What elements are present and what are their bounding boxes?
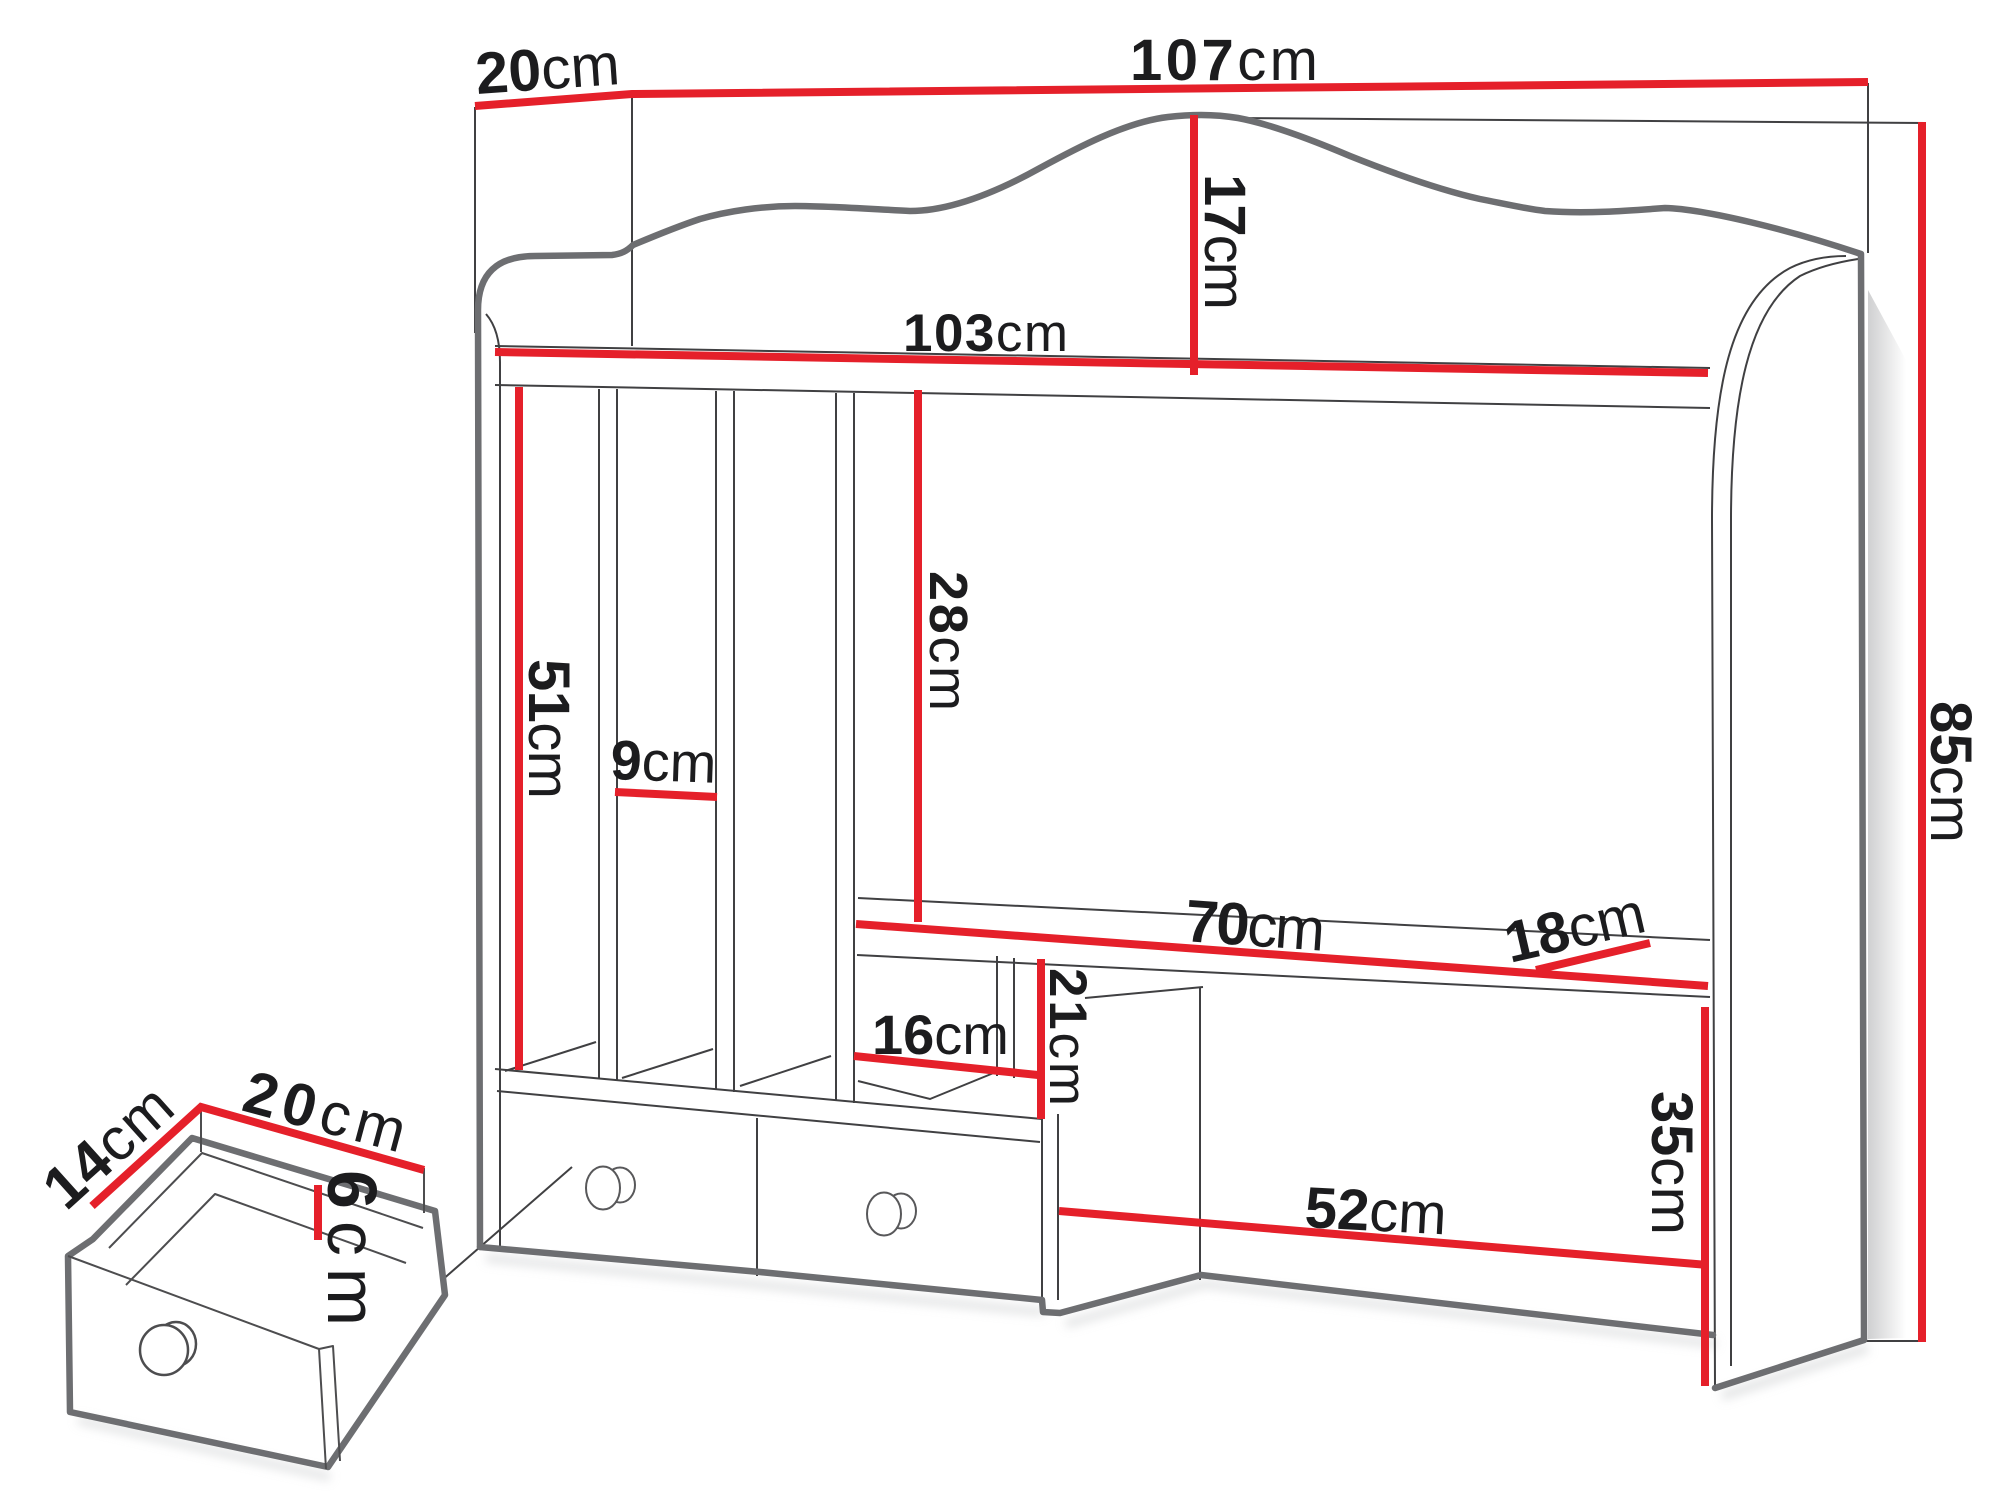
svg-text:70cm: 70cm [1183, 887, 1327, 964]
svg-text:107cm: 107cm [1130, 28, 1318, 93]
svg-text:35cm: 35cm [1639, 1091, 1704, 1235]
svg-text:20cm: 20cm [473, 31, 622, 107]
svg-text:52cm: 52cm [1303, 1175, 1448, 1247]
svg-text:17cm: 17cm [1192, 174, 1257, 310]
svg-text:9cm: 9cm [610, 728, 718, 795]
svg-text:51cm: 51cm [516, 659, 581, 799]
svg-text:85cm: 85cm [1918, 701, 1983, 843]
svg-text:21cm: 21cm [1038, 968, 1097, 1106]
svg-text:28cm: 28cm [918, 571, 978, 711]
svg-text:6cm: 6cm [313, 1170, 391, 1326]
svg-text:16cm: 16cm [872, 1003, 1009, 1066]
svg-text:103cm: 103cm [903, 304, 1068, 363]
